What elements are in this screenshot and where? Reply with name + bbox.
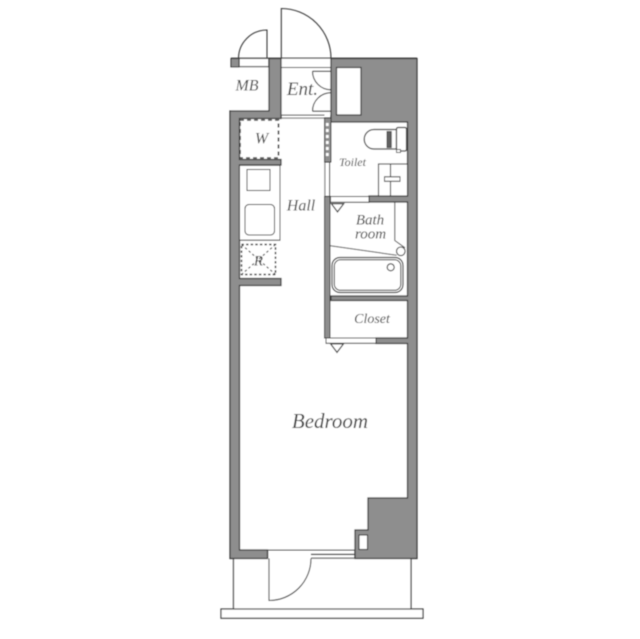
svg-text:Bedroom: Bedroom: [292, 409, 368, 433]
svg-text:Ent.: Ent.: [286, 79, 318, 100]
svg-text:W: W: [255, 131, 270, 148]
svg-text:Closet: Closet: [354, 312, 391, 327]
svg-text:MB: MB: [234, 78, 258, 95]
svg-text:Toilet: Toilet: [339, 155, 367, 169]
svg-text:room: room: [355, 226, 386, 242]
svg-text:R: R: [253, 254, 263, 270]
svg-text:Hall: Hall: [286, 198, 316, 215]
